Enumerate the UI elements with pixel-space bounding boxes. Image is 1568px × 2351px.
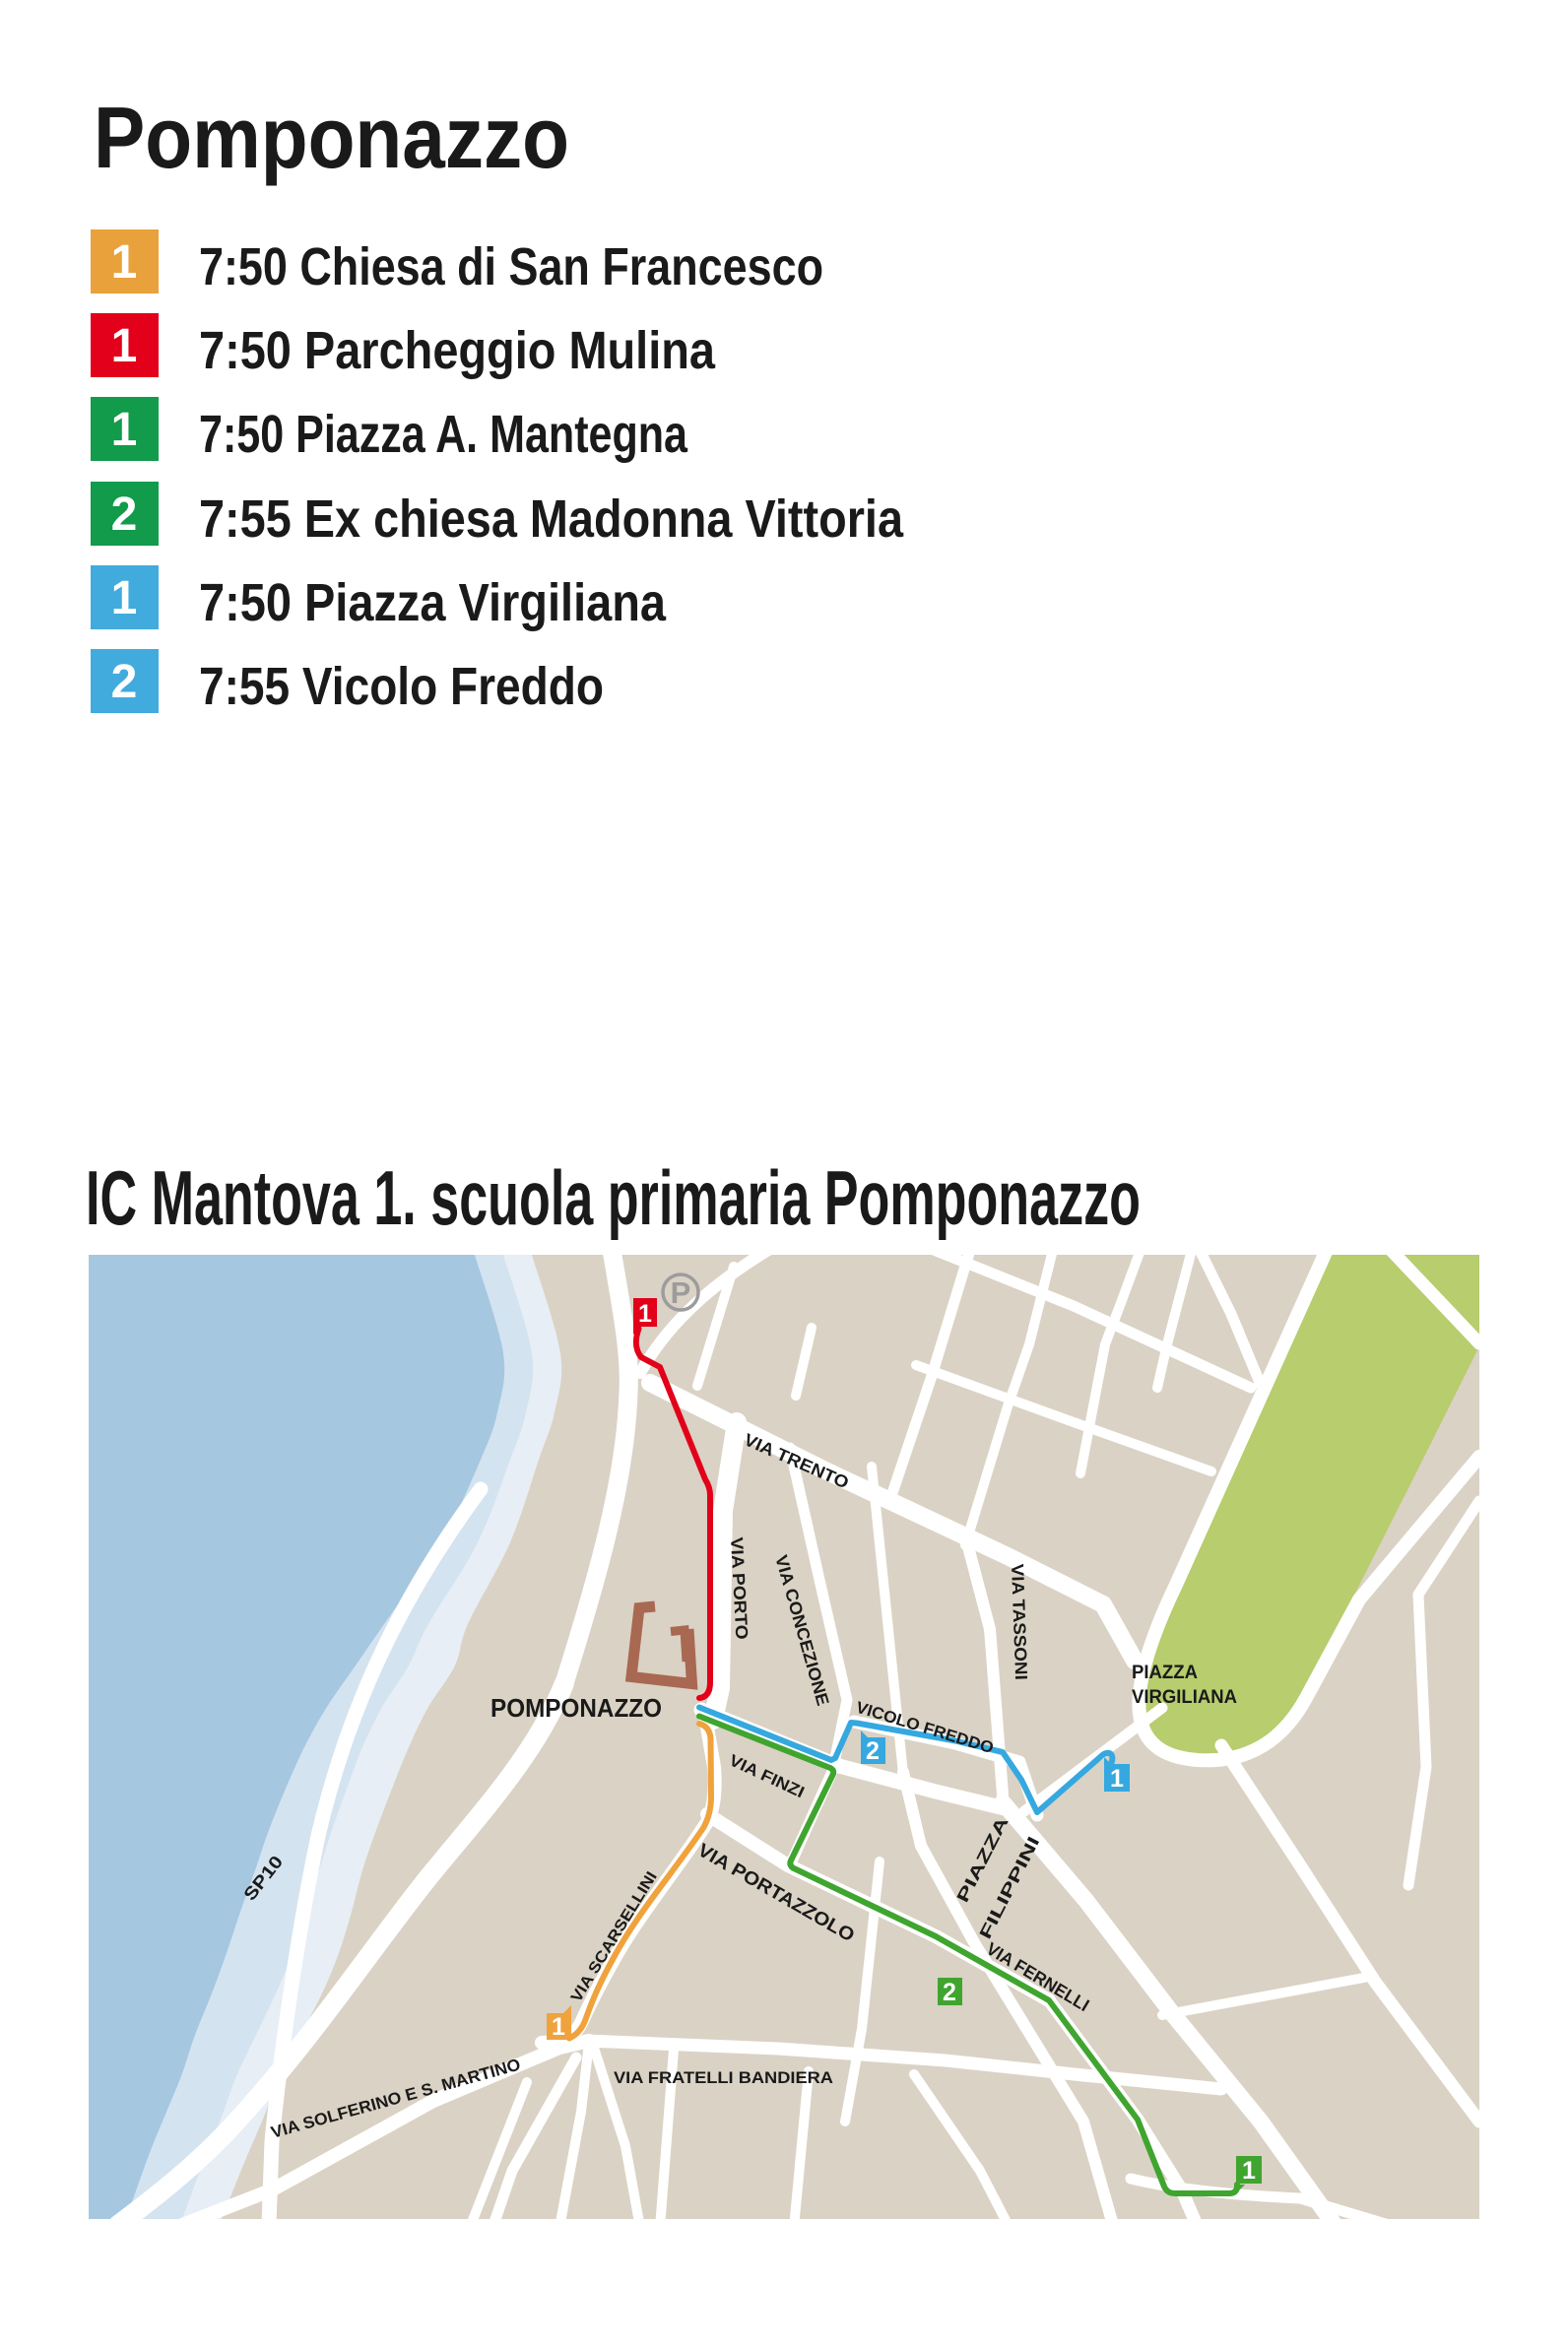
svg-text:PIAZZA: PIAZZA bbox=[1132, 1663, 1198, 1683]
svg-text:7:50 Piazza A. Mantegna: 7:50 Piazza A. Mantegna bbox=[199, 405, 688, 464]
svg-text:2: 2 bbox=[111, 489, 138, 541]
svg-text:IC Mantova 1. scuola primaria: IC Mantova 1. scuola primaria Pomponazzo bbox=[86, 1154, 1141, 1241]
svg-text:1: 1 bbox=[552, 2013, 565, 2041]
svg-text:7:55 Ex chiesa Madonna Vittori: 7:55 Ex chiesa Madonna Vittoria bbox=[199, 490, 904, 549]
svg-text:1: 1 bbox=[1110, 1765, 1124, 1793]
svg-text:1: 1 bbox=[638, 1300, 652, 1328]
svg-text:VIA FRATELLI BANDIERA: VIA FRATELLI BANDIERA bbox=[614, 2069, 833, 2087]
svg-text:1: 1 bbox=[111, 404, 138, 456]
svg-text:2: 2 bbox=[943, 1979, 956, 2006]
svg-text:Pomponazzo: Pomponazzo bbox=[94, 89, 569, 186]
svg-text:7:50 Chiesa di San Francesco: 7:50 Chiesa di San Francesco bbox=[199, 237, 823, 296]
svg-text:1: 1 bbox=[111, 320, 138, 372]
svg-text:7:50 Parcheggio Mulina: 7:50 Parcheggio Mulina bbox=[199, 321, 716, 380]
svg-text:1: 1 bbox=[111, 236, 138, 289]
svg-text:7:50 Piazza Virgiliana: 7:50 Piazza Virgiliana bbox=[199, 573, 667, 632]
svg-text:1: 1 bbox=[111, 572, 138, 624]
svg-text:1: 1 bbox=[1242, 2157, 1256, 2185]
svg-text:POMPONAZZO: POMPONAZZO bbox=[490, 1693, 662, 1723]
svg-text:7:55 Vicolo Freddo: 7:55 Vicolo Freddo bbox=[199, 657, 604, 716]
svg-text:VIRGILIANA: VIRGILIANA bbox=[1132, 1687, 1237, 1708]
svg-text:VIA TASSONI: VIA TASSONI bbox=[1008, 1563, 1031, 1680]
svg-text:2: 2 bbox=[111, 656, 138, 708]
svg-text:P: P bbox=[671, 1275, 691, 1310]
svg-text:2: 2 bbox=[866, 1737, 880, 1765]
